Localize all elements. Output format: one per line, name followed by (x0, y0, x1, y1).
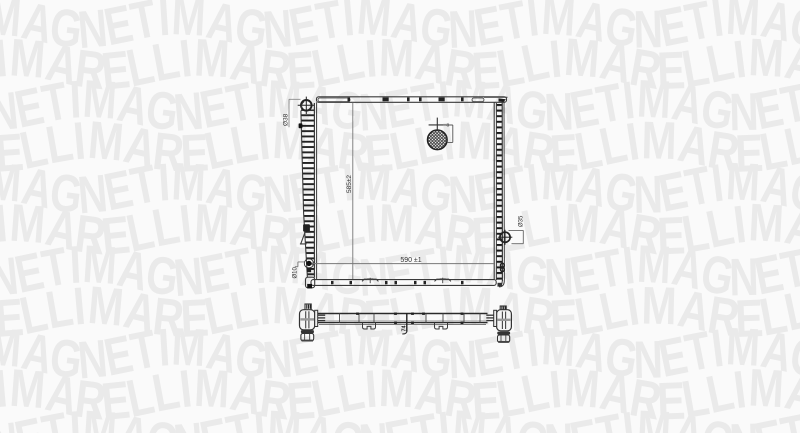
svg-text:Ø10: Ø10 (293, 266, 299, 278)
svg-text:585±2: 585±2 (346, 175, 353, 193)
svg-text:Ø35: Ø35 (519, 215, 525, 227)
svg-text:Ø38: Ø38 (282, 113, 289, 126)
svg-text:590 ±1: 590 ±1 (400, 257, 421, 264)
svg-text:8: 8 (447, 123, 450, 129)
svg-text:74: 74 (402, 324, 408, 331)
